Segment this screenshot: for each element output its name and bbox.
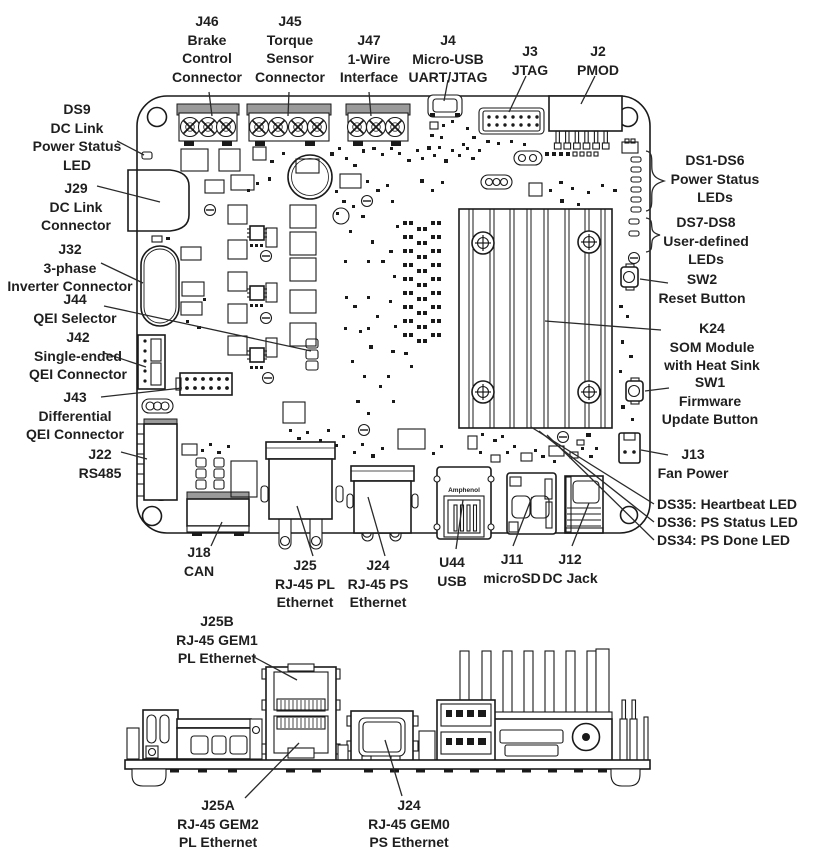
pcb-edge-bar bbox=[125, 760, 650, 769]
microsd-j11 bbox=[507, 473, 556, 534]
rj45-stack-j25b-j25a bbox=[262, 664, 340, 762]
som-heatsink-k24 bbox=[459, 209, 612, 428]
fan-power-pins-profile bbox=[620, 700, 648, 761]
label-j43: J43 Differential QEI Connector bbox=[0, 388, 160, 444]
usb-stack-profile bbox=[437, 700, 495, 761]
usb-u44: Amphenol bbox=[434, 467, 494, 539]
label-j25b: J25B RJ-45 GEM1 PL Ethernet bbox=[132, 612, 302, 668]
dc-jack-foot bbox=[611, 769, 640, 786]
label-j13: J13 Fan Power bbox=[608, 445, 778, 482]
label-j42: J42 Single-ended QEI Connector bbox=[0, 328, 163, 384]
label-sw2: SW2 Reset Button bbox=[617, 270, 787, 307]
rj45-cage-j24 bbox=[347, 711, 418, 762]
label-j24-bottom: J24 RJ-45 GEM0 PS Ethernet bbox=[324, 796, 494, 849]
heatsink-end-plate bbox=[596, 649, 609, 713]
label-j25a: J25A RJ-45 GEM2 PL Ethernet bbox=[133, 796, 303, 849]
microsd-profile bbox=[500, 730, 563, 743]
label-j2: J2 PMOD bbox=[513, 42, 683, 79]
terminal-block-profile bbox=[177, 719, 251, 759]
usb-brand-text: Amphenol bbox=[448, 487, 480, 494]
label-j12: J12 DC Jack bbox=[485, 550, 655, 587]
label-j29: J29 DC Link Connector bbox=[0, 179, 161, 235]
label-sw1: SW1 Firmware Update Button bbox=[625, 373, 795, 429]
small-box-profile bbox=[250, 719, 262, 759]
label-j32: J32 3-phase Inverter Connector bbox=[0, 240, 155, 296]
label-ds34: DS34: PS Done LED bbox=[657, 531, 813, 550]
jtag-header-j3 bbox=[479, 108, 544, 134]
board-callout-diagram: Amphenol bbox=[0, 0, 813, 849]
label-ds7-ds8: DS7-DS8 User-defined LEDs bbox=[621, 213, 791, 269]
rj45-j24 bbox=[347, 466, 418, 541]
left-foot bbox=[132, 769, 166, 786]
label-k24: K24 SOM Module with Heat Sink bbox=[627, 319, 797, 375]
label-j44: J44 QEI Selector bbox=[0, 290, 160, 327]
left-connector-profile bbox=[127, 728, 139, 759]
label-ds36: DS36: PS Status LED bbox=[657, 513, 813, 532]
terminal-profile-prongs bbox=[143, 710, 178, 759]
label-ds1-ds6: DS1-DS6 Power Status LEDs bbox=[630, 151, 800, 207]
label-ds35: DS35: Heartbeat LED bbox=[657, 495, 813, 514]
label-j22: J22 RS485 bbox=[15, 445, 185, 482]
side-view bbox=[125, 649, 650, 786]
label-ds9: DS9 DC Link Power Status LED bbox=[0, 100, 162, 174]
